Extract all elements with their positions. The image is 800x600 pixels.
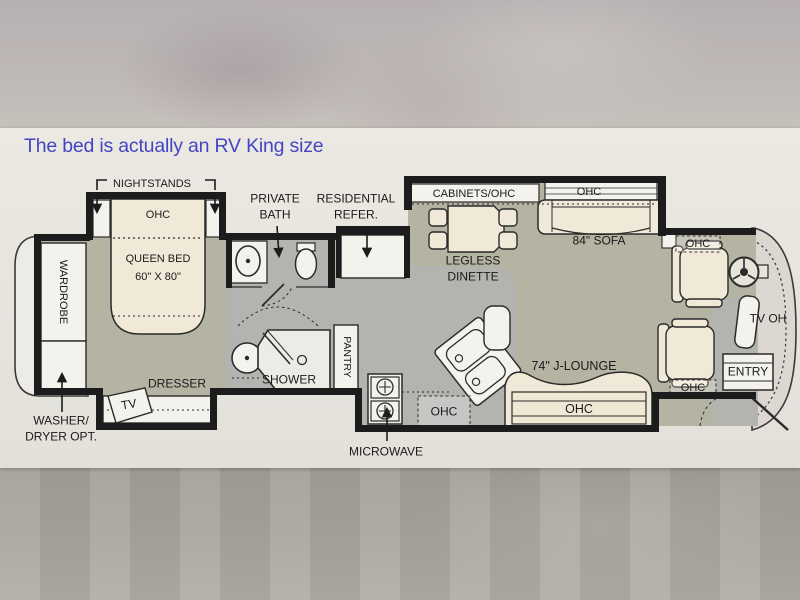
refrigerator <box>341 235 405 278</box>
label-refer-1: RESIDENTIAL <box>317 192 396 205</box>
counter-end <box>484 306 510 350</box>
label-front-ohc-bottom: OHC <box>681 382 705 394</box>
label-cabinets-ohc: CABINETS/OHC <box>433 188 516 200</box>
label-private-bath-2: BATH <box>259 208 290 221</box>
passenger-seat <box>658 319 714 387</box>
label-washer-2: DRYER OPT. <box>25 430 97 443</box>
cooktop <box>368 374 402 424</box>
caption-note: The bed is actually an RV King size <box>24 135 323 158</box>
label-dresser: DRESSER <box>148 377 206 390</box>
label-sofa-ohc: OHC <box>577 186 601 198</box>
label-wardrobe: WARDROBE <box>57 260 69 324</box>
label-kitchen-ohc: OHC <box>431 405 458 418</box>
washer-dryer-cabinet <box>41 341 86 390</box>
label-sofa: 84" SOFA <box>573 234 626 247</box>
sofa-84 <box>538 200 664 235</box>
floorplan-screenshot: The bed is actually an RV King size NIGH… <box>0 0 800 600</box>
label-tv-oh: TV OH <box>750 312 787 325</box>
label-refer-2: REFER. <box>334 208 378 221</box>
label-dinette-1: LEGLESS <box>446 254 501 267</box>
label-front-ohc-top: OHC <box>686 238 710 250</box>
label-bed-ohc: OHC <box>146 209 170 221</box>
label-nightstands: NIGHTSTANDS <box>113 178 191 190</box>
label-tv: TV <box>120 397 137 413</box>
label-pantry: PANTRY <box>340 336 352 378</box>
floorplan-drawing <box>0 0 800 600</box>
nightstand-left <box>93 200 110 237</box>
label-shower: SHOWER <box>262 373 316 386</box>
label-queen-bed-1: QUEEN BED <box>126 253 191 265</box>
label-private-bath-1: PRIVATE <box>250 192 300 205</box>
label-jlounge-ohc: OHC <box>565 402 593 416</box>
label-queen-bed-2: 60" X 80" <box>135 271 181 283</box>
label-dinette-2: DINETTE <box>447 270 498 283</box>
toilet <box>296 243 317 279</box>
label-washer-1: WASHER/ <box>33 414 89 427</box>
label-jlounge: 74" J-LOUNGE <box>531 359 616 373</box>
nightstand-right <box>206 200 221 237</box>
label-microwave: MICROWAVE <box>349 445 423 458</box>
label-entry: ENTRY <box>728 365 768 378</box>
bath-sink <box>231 241 267 283</box>
